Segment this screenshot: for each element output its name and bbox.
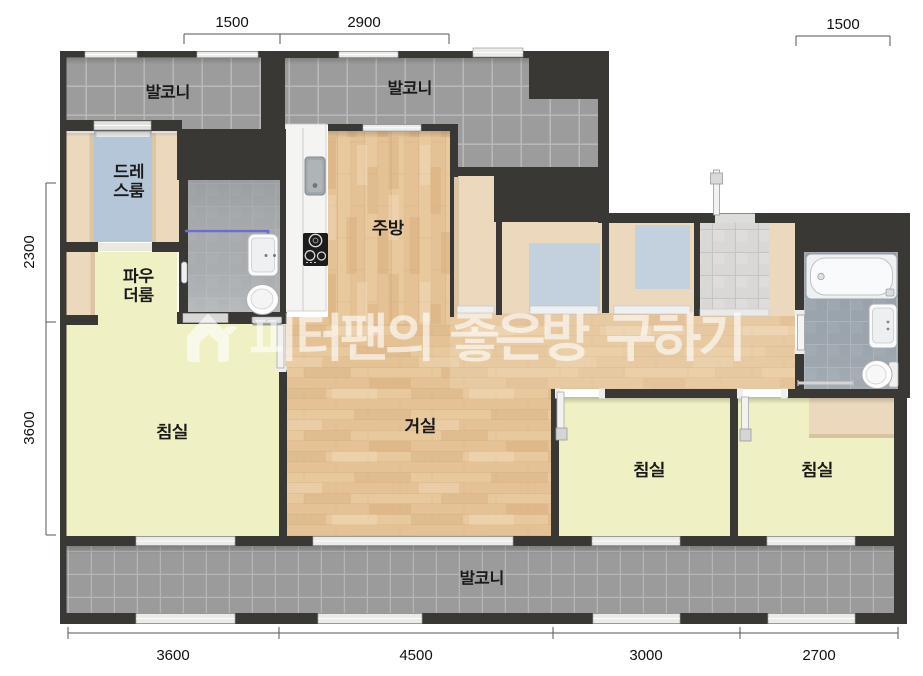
svg-text:2700: 2700	[802, 647, 835, 664]
svg-text:3600: 3600	[21, 411, 38, 444]
svg-text:4500: 4500	[399, 647, 432, 664]
svg-text:1500: 1500	[826, 16, 859, 33]
svg-text:1500: 1500	[215, 14, 248, 31]
svg-text:2900: 2900	[347, 14, 380, 31]
svg-text:2300: 2300	[21, 235, 38, 268]
svg-text:3000: 3000	[629, 647, 662, 664]
svg-text:3600: 3600	[156, 647, 189, 664]
